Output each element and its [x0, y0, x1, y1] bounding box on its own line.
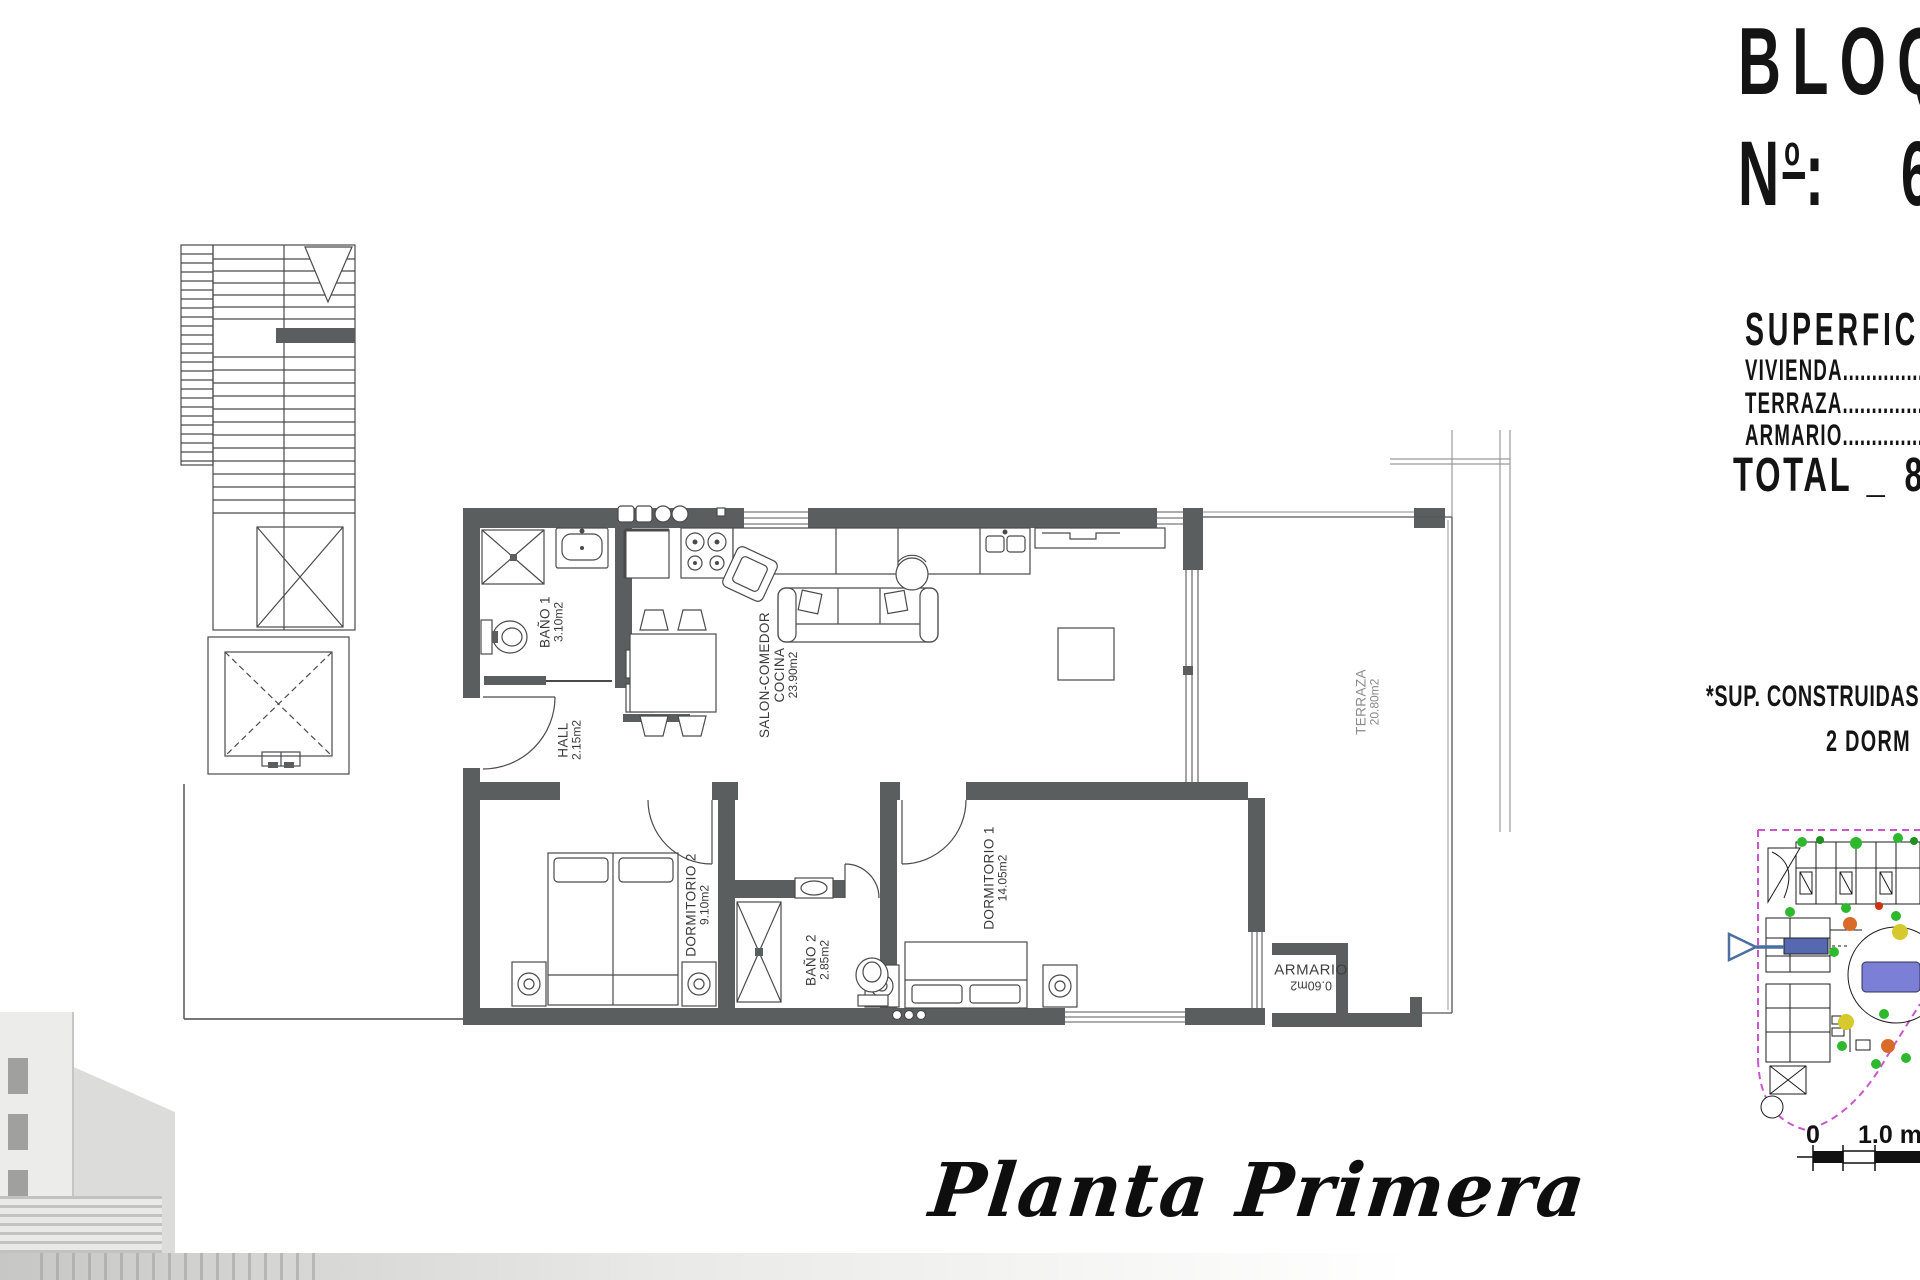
room-name: BAÑO 1	[538, 596, 553, 648]
room-name: BAÑO 2	[804, 934, 819, 986]
room-area: 20.80m2	[1369, 679, 1382, 726]
room-label-armario: ARMARIO 0.60m2	[1274, 963, 1348, 992]
numero-label: N	[1738, 123, 1783, 225]
corridor-lines	[184, 784, 463, 1019]
room-area: 3.10m2	[553, 602, 566, 642]
room-name: DORMITORIO 2	[684, 853, 699, 957]
room-label-dormitorio2: DORMITORIO 2 9.10m2	[684, 853, 713, 957]
room-name: ARMARIO	[1274, 963, 1348, 979]
total-label: TOTAL	[1733, 449, 1852, 502]
room-area: 2.85m2	[819, 940, 832, 980]
numero-colon: :	[1805, 123, 1828, 225]
elevator	[208, 637, 349, 774]
dot-leader: ........................................…	[1843, 387, 1920, 420]
superficie-row-vivienda: VIVIENDA................................…	[1745, 356, 1920, 386]
room-area: 9.10m2	[699, 885, 712, 925]
block-number-line: No:6	[1738, 128, 1920, 220]
superficie-row-terraza: TERRAZA.................................…	[1745, 389, 1920, 419]
room-area: 2.15m2	[571, 720, 584, 760]
room-area: 23.90m2	[787, 652, 800, 699]
room-label-dormitorio1: DORMITORIO 1 14.05m2	[982, 826, 1011, 930]
numero-value: 6	[1901, 128, 1920, 220]
site-pool	[1862, 962, 1920, 992]
superficies-heading: SUPERFICIE	[1745, 306, 1920, 352]
drawing-sheet: { "title_block": { "bloque_label": "BLOQ…	[0, 0, 1920, 1280]
room-label-salon: SALON-COMEDOR COCINA 23.90m2	[757, 612, 801, 738]
photo-fragment	[0, 1000, 175, 1280]
room-area: 0.60m2	[1290, 978, 1332, 991]
note-dormitorios: 2 DORM	[1826, 727, 1911, 757]
room-name: DORMITORIO 1	[982, 826, 997, 930]
room-label-hall: HALL 2.15m2	[556, 720, 585, 760]
dot-leader: ........................................…	[1843, 419, 1920, 452]
scale-meter-label: 1.0 m.	[1858, 1121, 1920, 1149]
room-label-bano2: BAÑO 2 2.85m2	[804, 934, 833, 986]
room-label-terraza: TERRAZA 20.80m2	[1354, 669, 1383, 735]
scale-zero-label: 0	[1806, 1121, 1820, 1149]
room-name: SALON-COMEDOR	[757, 612, 772, 738]
total-line: TOTAL_8	[1733, 452, 1920, 500]
stairs	[181, 245, 355, 630]
scale-bar: 0 1.0 m.	[1797, 1121, 1920, 1171]
block-title: BLOQ	[1738, 14, 1920, 110]
row-label: VIVIENDA	[1745, 354, 1843, 387]
row-label: ARMARIO	[1745, 419, 1843, 452]
floor-plan-drawing	[0, 0, 1920, 1280]
total-value: 8	[1905, 449, 1920, 502]
superficie-row-armario: ARMARIO.................................…	[1745, 421, 1920, 451]
numero-ordinal: o	[1783, 130, 1805, 179]
room-name2: COCINA	[772, 648, 787, 703]
terraza-boundary	[1203, 512, 1452, 1013]
room-name: HALL	[556, 722, 571, 757]
room-area: 14.05m2	[997, 855, 1010, 902]
site-plan-map: 0 1.0 m.	[1700, 820, 1920, 1180]
context-lines	[1390, 430, 1510, 832]
room-name: TERRAZA	[1354, 669, 1369, 735]
photo-bottom-ticks	[40, 1253, 320, 1280]
plan-title: Planta Primera	[925, 1148, 1591, 1234]
photo-window-slot	[8, 1058, 28, 1094]
dot-leader: ........................................…	[1843, 354, 1920, 387]
photo-window-slot	[8, 1114, 28, 1150]
note-sup-construidas: *SUP. CONSTRUIDAS	[1706, 682, 1919, 712]
room-label-bano1: BAÑO 1 3.10m2	[538, 596, 567, 648]
row-label: TERRAZA	[1745, 387, 1843, 420]
total-underscore: _	[1867, 449, 1888, 502]
